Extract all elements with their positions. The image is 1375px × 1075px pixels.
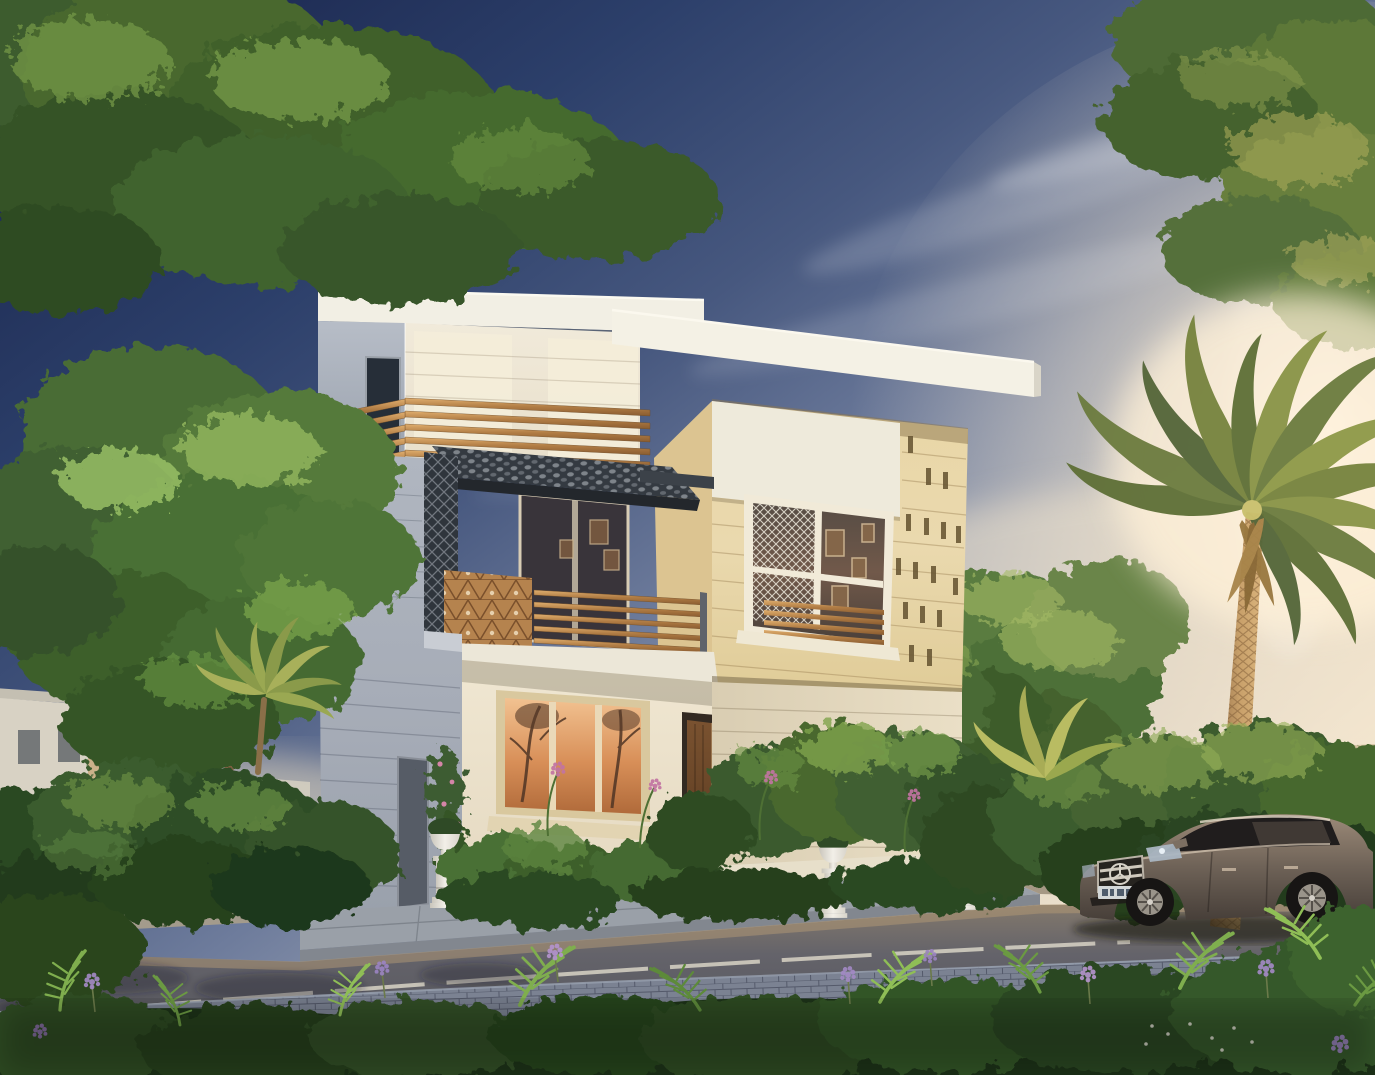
render-canvas: [0, 0, 1375, 1075]
architectural-render: Photorealistic rendering of a modern thr…: [0, 0, 1375, 1075]
sandstone-window: [736, 494, 900, 661]
window-lattice-screen: [753, 503, 817, 629]
car-front-wheel: [1126, 878, 1174, 926]
side-door: [398, 757, 428, 908]
bottom-vignette: [0, 1005, 1375, 1075]
